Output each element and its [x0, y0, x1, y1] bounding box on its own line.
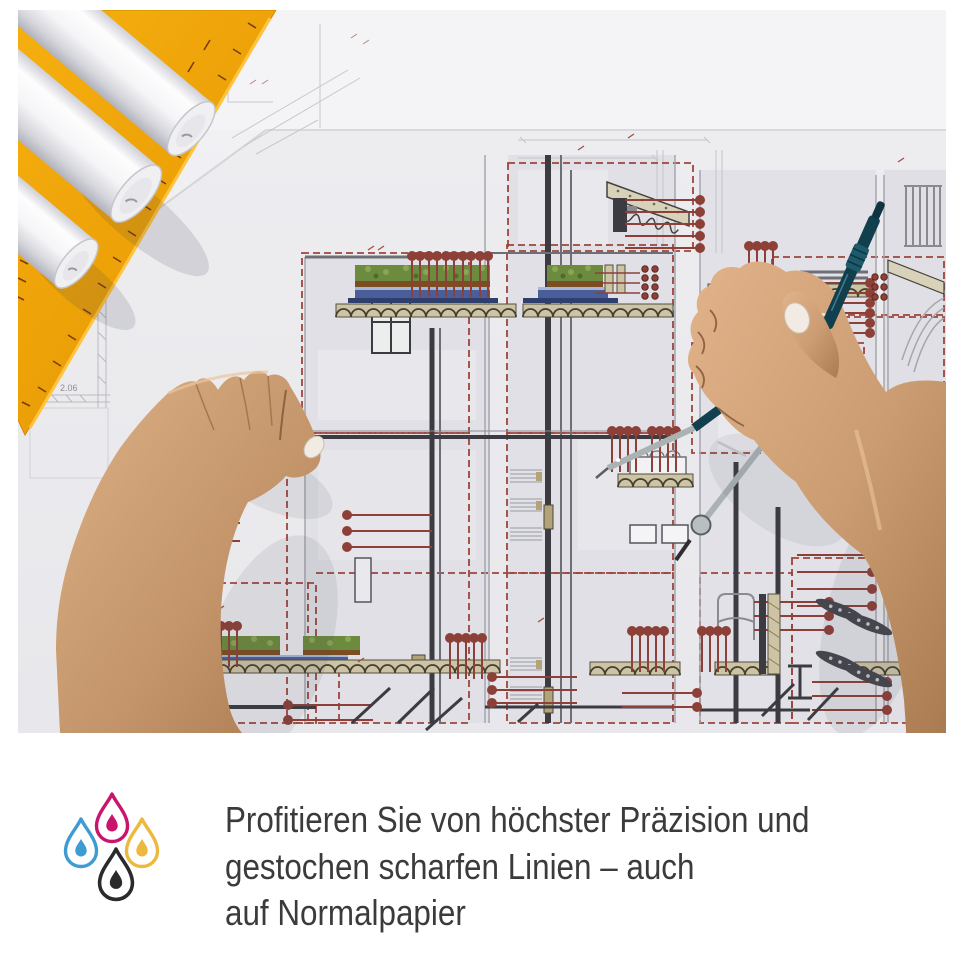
blueprint-dimension-label: 2.06 — [60, 383, 78, 393]
caption-line-3: auf Normalpapier — [225, 890, 879, 937]
caption-text: Profitieren Sie von höchster Präzision u… — [225, 797, 879, 937]
cmyk-ink-drops-icon — [60, 787, 170, 905]
caption-line-2: gestochen scharfen Linien – auch — [225, 844, 879, 891]
green-roof-band-1 — [348, 265, 625, 303]
caption-line-1: Profitieren Sie von höchster Präzision u… — [225, 797, 879, 844]
blueprint-photo: 2.06 — [18, 10, 946, 733]
compass-hub — [692, 516, 711, 535]
